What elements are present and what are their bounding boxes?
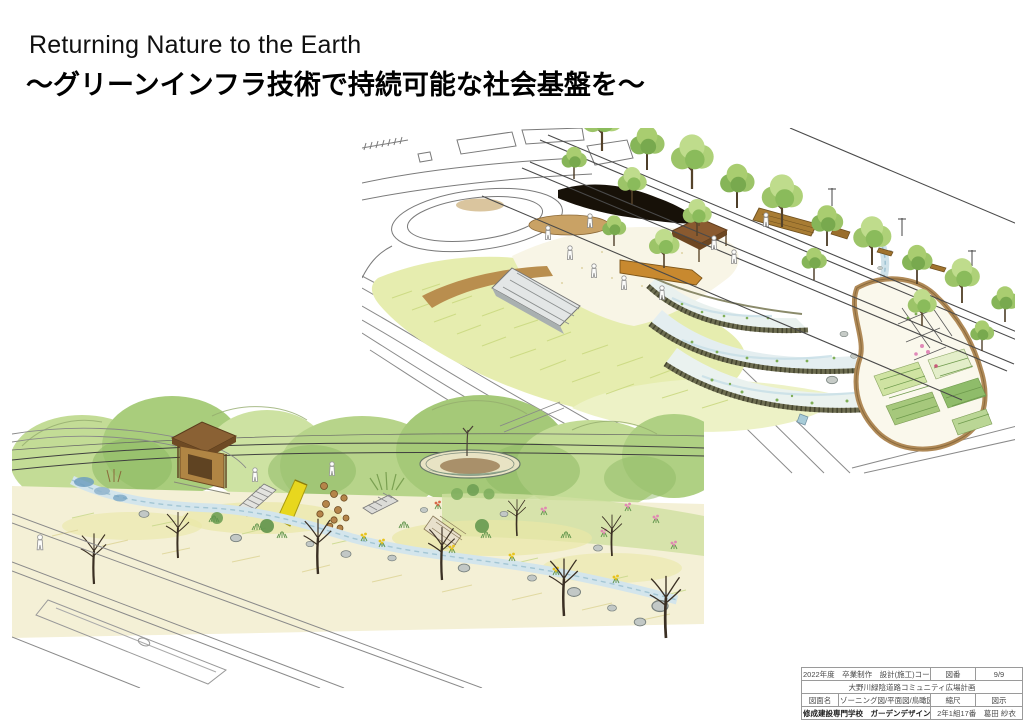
page-subtitle: ～グリーンインフラ技術で持続可能な社会基盤を～ (26, 63, 645, 102)
titleblock-row-project: 大野川緑陰道路コミュニティ広場計画 (802, 681, 1023, 694)
titleblock-row-drawing-name: 図面名 ゾーニング図/平面図/鳥瞰図 縮尺 図示 (802, 694, 1023, 707)
titleblock-student: 2年1組17番 葛田 紗衣 (931, 707, 1023, 720)
titleblock-row-course: 2022年度 卒業制作 設計(施工)コース 図番 9/9 (802, 668, 1023, 681)
eyelevel-illustration-svg (12, 386, 704, 688)
pavilion (172, 422, 236, 494)
titleblock-scale-label: 縮尺 (931, 694, 976, 707)
titleblock-school: 修成建設専門学校 ガーデンデザイン学科 (802, 707, 931, 720)
drawing-title-block: 2022年度 卒業制作 設計(施工)コース 図番 9/9 大野川緑陰道路コミュニ… (801, 667, 1023, 720)
page-title: Returning Nature to the Earth (29, 31, 361, 60)
sand-circle (529, 215, 609, 235)
titleblock-course: 2022年度 卒業制作 設計(施工)コース (802, 668, 931, 681)
titleblock-project-title: 大野川緑陰道路コミュニティ広場計画 (802, 681, 1023, 694)
street-poles (828, 188, 976, 266)
slide-canvas: { "slide": { "title_en": "Returning Natu… (0, 0, 1024, 723)
sand-circle-small (456, 199, 504, 212)
ground-wash (12, 486, 704, 638)
titleblock-drawing-name-value: ゾーニング図/平面図/鳥瞰図 (839, 694, 931, 707)
titleblock-drawing-no-label: 図番 (931, 668, 976, 681)
titleblock-drawing-no-value: 9/9 (976, 668, 1023, 681)
titleblock-drawing-name-label: 図面名 (802, 694, 839, 707)
eyelevel-illustration (12, 386, 704, 688)
titleblock-scale-value: 図示 (976, 694, 1023, 707)
titleblock-row-author: 修成建設専門学校 ガーデンデザイン学科 2年1組17番 葛田 紗衣 (802, 707, 1023, 720)
